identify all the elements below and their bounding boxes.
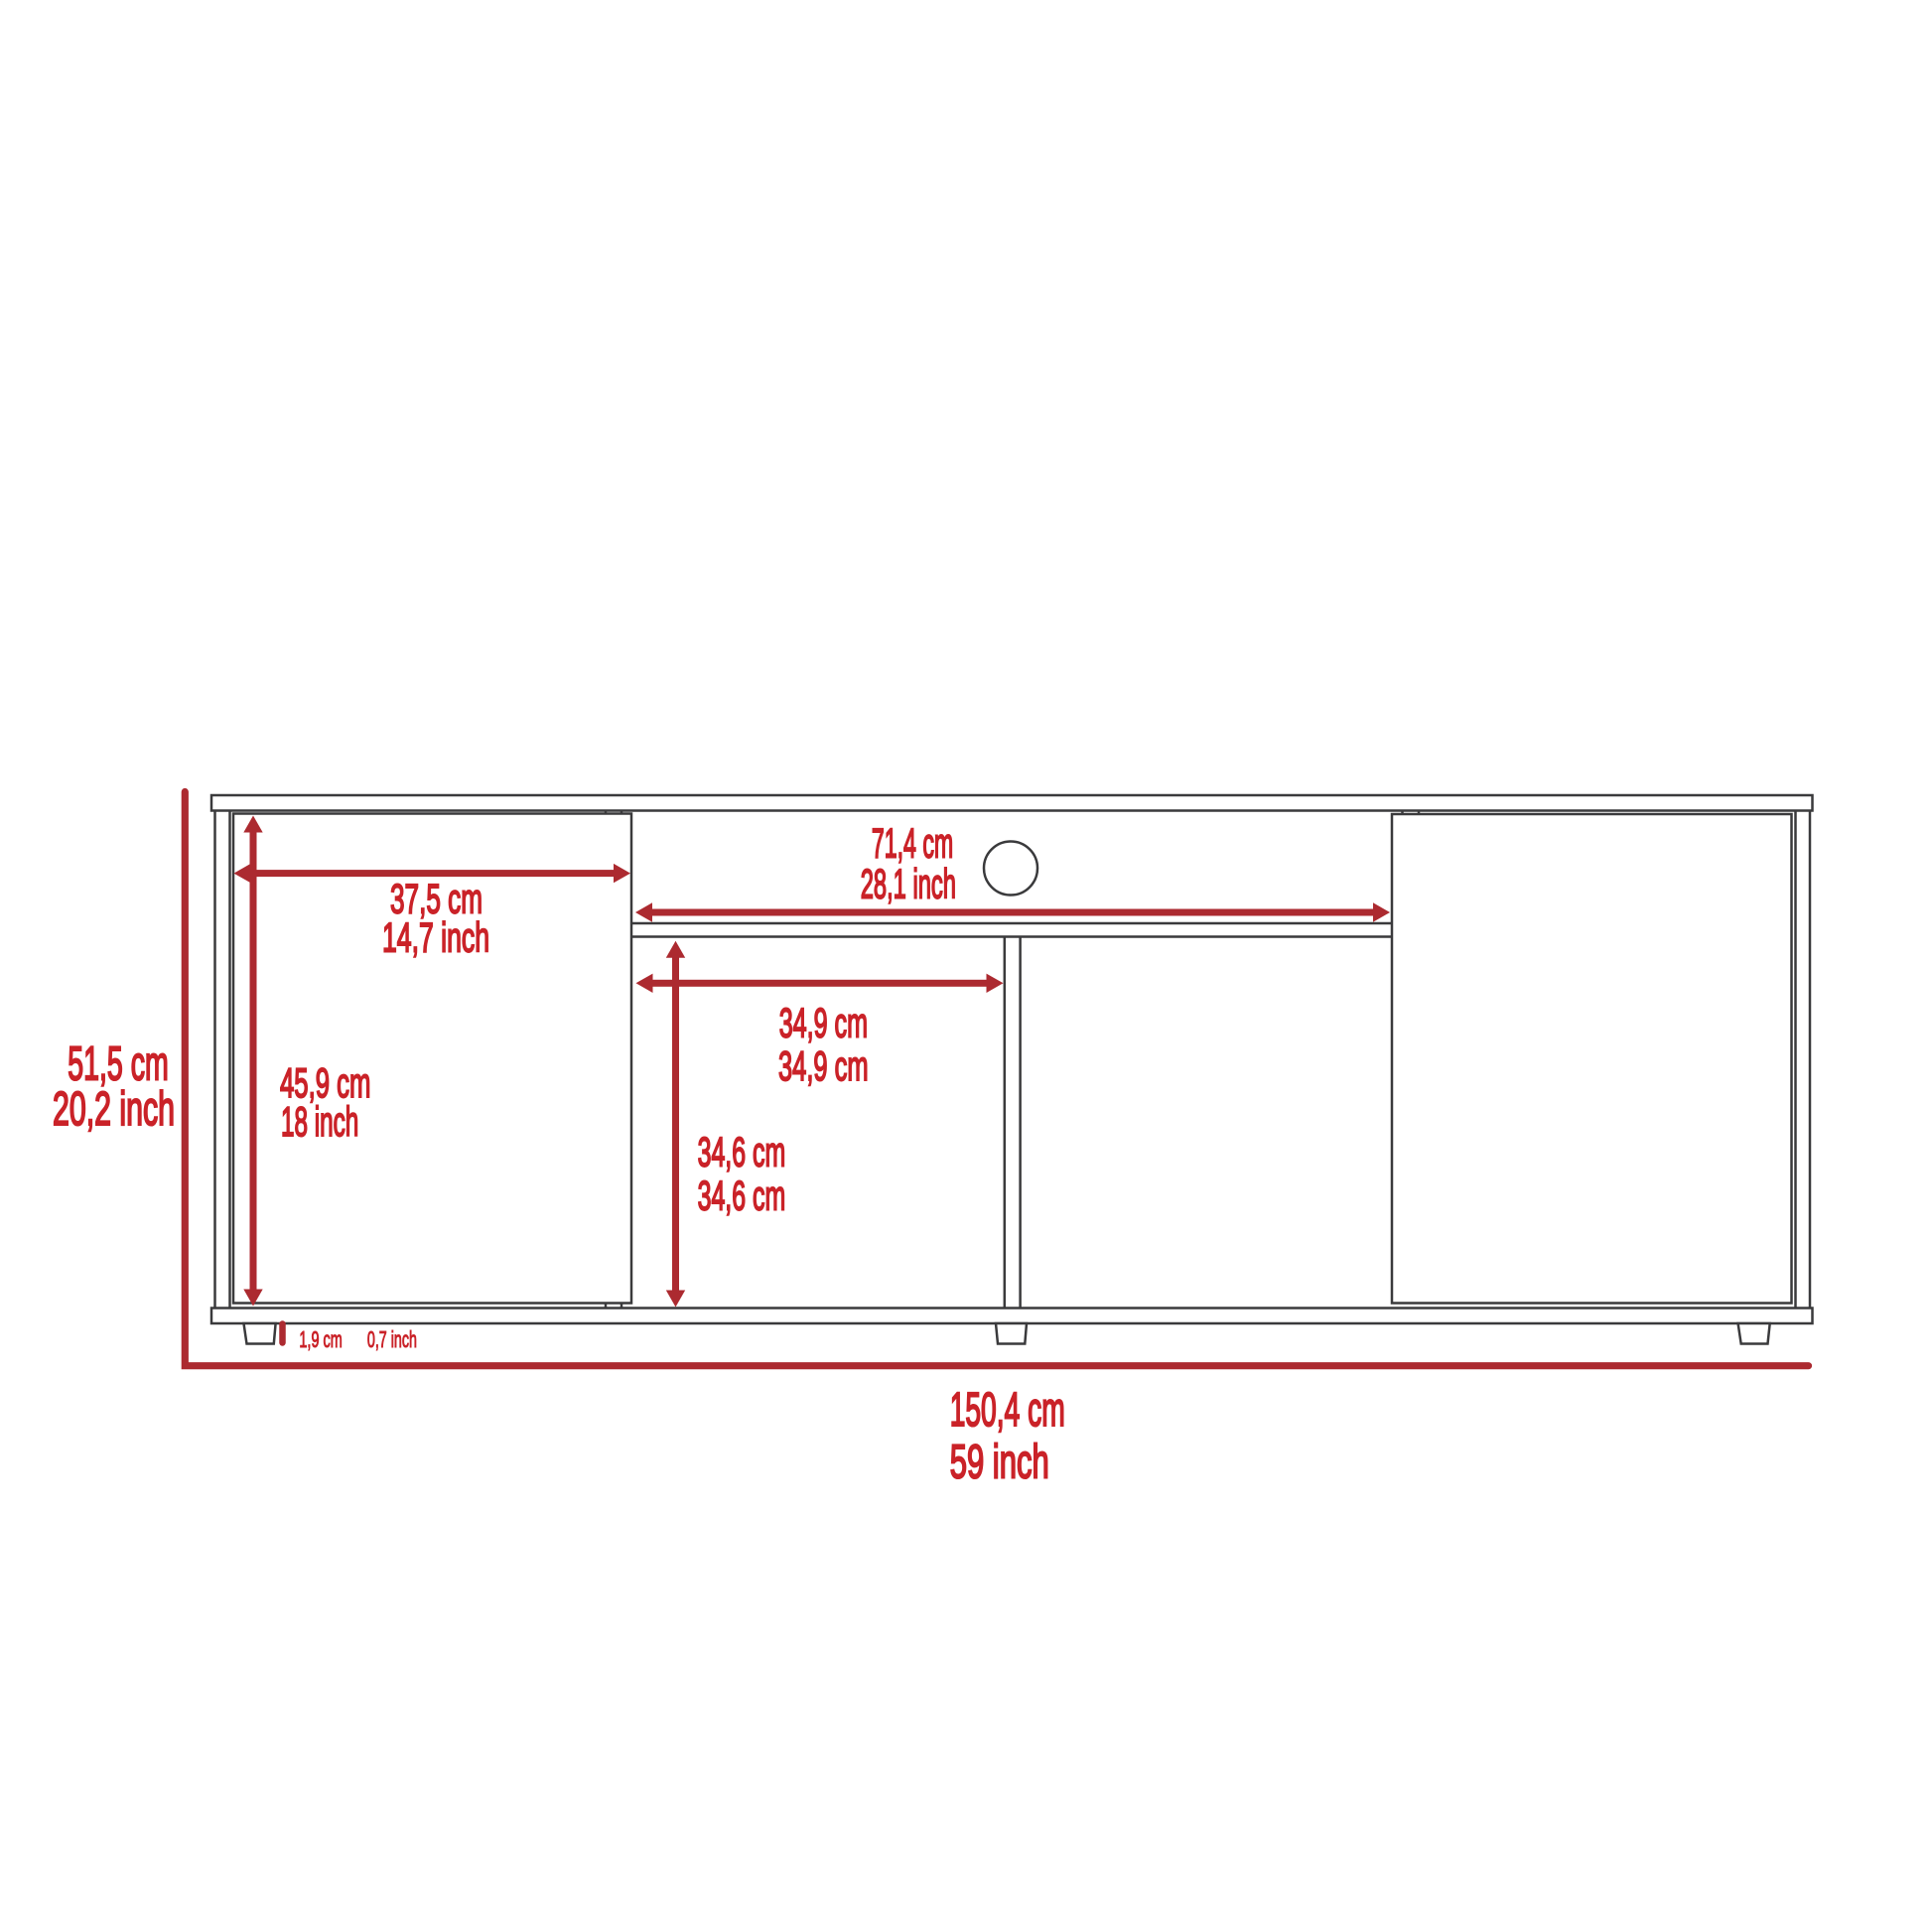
svg-text:18 inch: 18 inch bbox=[281, 1098, 358, 1145]
svg-text:1,9 cm: 1,9 cm bbox=[299, 1326, 342, 1352]
svg-text:14,7 inch: 14,7 inch bbox=[382, 914, 489, 961]
svg-text:34,9 cm: 34,9 cm bbox=[778, 1042, 869, 1089]
svg-text:34,9 cm: 34,9 cm bbox=[779, 1000, 868, 1046]
svg-text:59 inch: 59 inch bbox=[950, 1437, 1049, 1489]
svg-text:20,2 inch: 20,2 inch bbox=[53, 1083, 175, 1136]
svg-text:150,4 cm: 150,4 cm bbox=[950, 1384, 1065, 1437]
svg-text:71,4 cm: 71,4 cm bbox=[872, 820, 953, 867]
svg-text:34,6 cm: 34,6 cm bbox=[698, 1129, 786, 1175]
svg-text:34,6 cm: 34,6 cm bbox=[698, 1173, 786, 1219]
svg-text:0,7 inch: 0,7 inch bbox=[367, 1326, 417, 1352]
svg-text:28,1 inch: 28,1 inch bbox=[861, 861, 956, 907]
